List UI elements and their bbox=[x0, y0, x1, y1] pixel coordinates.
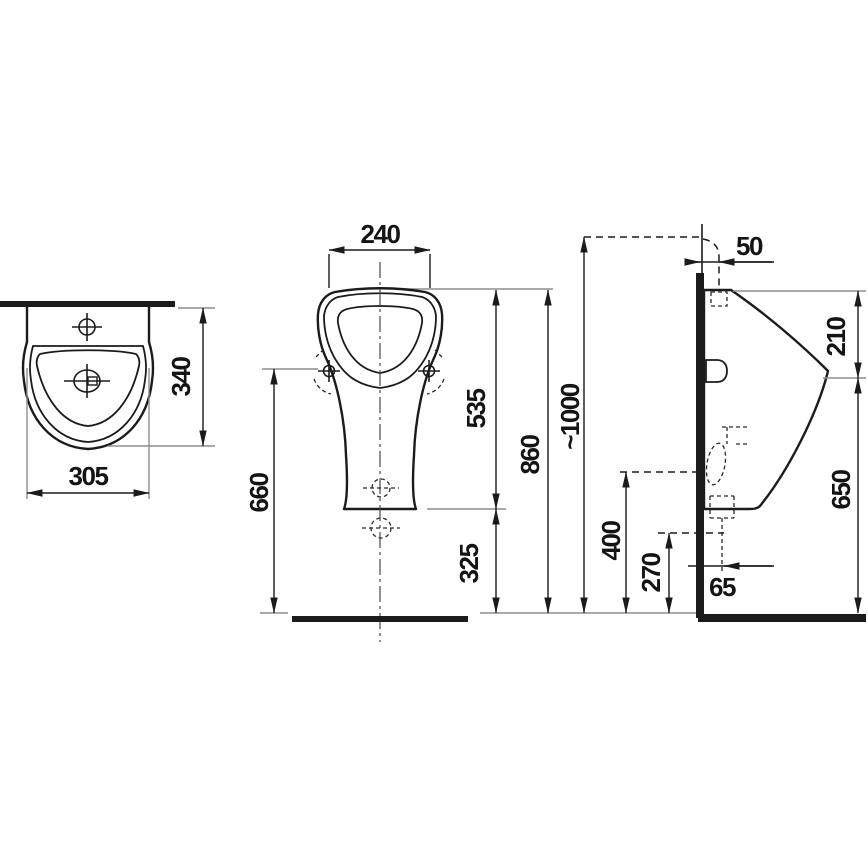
dim-base-to-floor: 325 bbox=[454, 509, 496, 613]
plan-view: 340 305 bbox=[0, 301, 215, 499]
dim-label-base-to-floor: 325 bbox=[454, 544, 484, 584]
dim-inlet-wall-offset: 50 bbox=[686, 231, 774, 262]
dim-front-edge-height: 650 bbox=[826, 378, 858, 613]
outlet-target-lower-icon bbox=[362, 518, 400, 538]
dim-label-front-edge-height: 650 bbox=[826, 470, 856, 510]
dim-label-top-to-front-edge: 210 bbox=[821, 317, 851, 357]
dim-label-inlet-level: ~1000 bbox=[555, 383, 585, 450]
dim-label-outlet-wall-offset: 65 bbox=[709, 572, 736, 602]
dim-top-to-front-edge: 210 bbox=[821, 291, 858, 378]
dim-rim-to-base: 535 bbox=[461, 290, 496, 509]
dim-label-mounting-holes-height: 660 bbox=[244, 473, 274, 513]
dim-trap-level: 400 bbox=[596, 472, 626, 613]
side-view: 50 ~1000 210 650 400 270 bbox=[555, 224, 866, 622]
floor-section-bar-front bbox=[292, 616, 468, 622]
wall-section-bar bbox=[0, 301, 175, 307]
dim-label-trap-level: 400 bbox=[596, 521, 626, 561]
dim-inlet-level: ~1000 bbox=[555, 237, 585, 613]
inlet-pipe-hidden bbox=[703, 239, 719, 290]
dim-label-rim-width: 240 bbox=[361, 219, 401, 249]
dim-mounting-holes-height: 660 bbox=[244, 369, 274, 613]
side-profile-outline bbox=[704, 290, 828, 509]
floor-section-bar-side bbox=[698, 614, 866, 622]
dim-label-overall-height: 860 bbox=[515, 435, 545, 475]
dim-label-outlet-level: 270 bbox=[636, 553, 666, 593]
technical-drawing-page: 340 305 bbox=[0, 0, 868, 868]
dim-label-plan-width: 305 bbox=[69, 461, 109, 491]
dim-label-inlet-wall-offset: 50 bbox=[736, 231, 763, 261]
urinal-dimension-drawing: 340 305 bbox=[0, 0, 868, 868]
dim-overall-height: 860 bbox=[515, 290, 548, 613]
dim-outlet-level: 270 bbox=[636, 533, 669, 613]
front-view: 240 660 535 325 860 bbox=[244, 219, 700, 642]
dim-label-plan-depth: 340 bbox=[166, 357, 196, 397]
dim-label-rim-to-base: 535 bbox=[461, 389, 491, 429]
